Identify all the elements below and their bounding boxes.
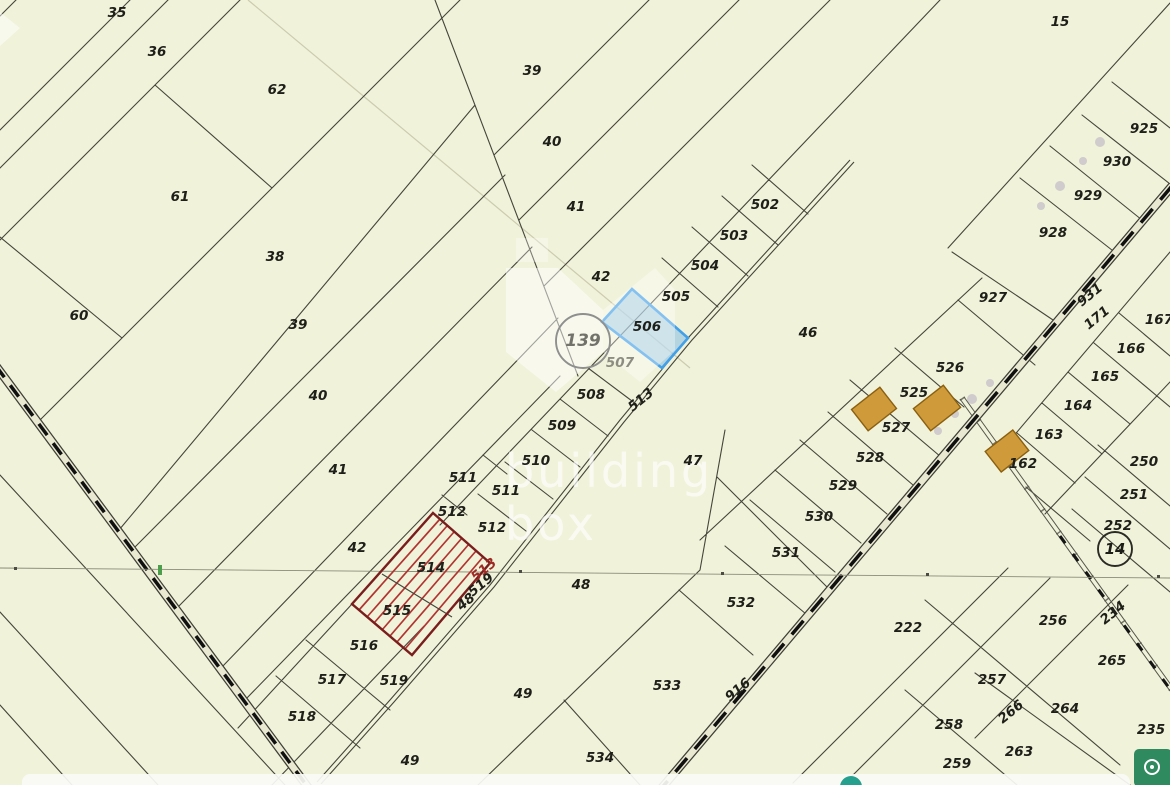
bottom-toolbar[interactable] — [22, 774, 1130, 785]
parcel-label-532[interactable]: 532 — [727, 595, 755, 611]
parcel-label-510[interactable]: 510 — [522, 453, 550, 469]
parcel-label-256[interactable]: 256 — [1039, 613, 1067, 629]
parcel-label-166[interactable]: 166 — [1117, 341, 1145, 357]
parcel-label-15[interactable]: 15 — [1051, 14, 1070, 30]
parcel-label-517[interactable]: 517 — [318, 672, 347, 688]
parcel-label-503[interactable]: 503 — [720, 228, 748, 244]
watermark-text-line2: box — [505, 497, 597, 551]
parcel-label-38[interactable]: 38 — [266, 249, 285, 265]
svg-text:139: 139 — [565, 331, 601, 351]
parcel-label-40[interactable]: 40 — [308, 388, 328, 404]
parcel-label-929[interactable]: 929 — [1074, 188, 1102, 204]
parcel-label-927[interactable]: 927 — [979, 290, 1008, 306]
parcel-label-511[interactable]: 511 — [492, 483, 520, 499]
parcel-label-526[interactable]: 526 — [936, 360, 964, 376]
parcel-label-49[interactable]: 49 — [400, 753, 420, 769]
parcel-label-528[interactable]: 528 — [856, 450, 884, 466]
parcel-label-36[interactable]: 36 — [148, 44, 167, 60]
parcel-label-222[interactable]: 222 — [894, 620, 922, 636]
cadastral-map[interactable]: building box 13914 353662613860394041423… — [0, 0, 1170, 785]
parcel-label-511[interactable]: 511 — [449, 470, 477, 486]
parcel-label-531[interactable]: 531 — [772, 545, 800, 561]
parcel-label-515[interactable]: 515 — [383, 603, 411, 619]
parcel-label-165[interactable]: 165 — [1091, 369, 1119, 385]
parcel-label-930[interactable]: 930 — [1103, 154, 1131, 170]
parcel-label-533[interactable]: 533 — [653, 678, 681, 694]
parcel-label-514[interactable]: 514 — [417, 560, 445, 576]
parcel-label-250[interactable]: 250 — [1130, 454, 1158, 470]
parcel-label-258[interactable]: 258 — [935, 717, 963, 733]
parcel-label-40[interactable]: 40 — [542, 134, 562, 150]
parcel-label-512[interactable]: 512 — [438, 504, 466, 520]
parcel-label-509[interactable]: 509 — [548, 418, 576, 434]
map-viewport[interactable]: building box 13914 353662613860394041423… — [0, 0, 1170, 785]
parcel-label-508[interactable]: 508 — [577, 387, 605, 403]
parcel-label-41[interactable]: 41 — [566, 199, 586, 215]
locate-button[interactable] — [1134, 749, 1170, 785]
parcel-label-507[interactable]: 507 — [606, 355, 635, 371]
parcel-label-164[interactable]: 164 — [1064, 398, 1092, 414]
parcel-label-257[interactable]: 257 — [978, 672, 1007, 688]
parcel-label-519[interactable]: 519 — [380, 673, 408, 689]
parcel-label-61[interactable]: 61 — [171, 189, 190, 205]
parcel-label-48[interactable]: 48 — [571, 577, 591, 593]
parcel-label-530[interactable]: 530 — [805, 509, 833, 525]
parcel-label-264[interactable]: 264 — [1051, 701, 1079, 717]
parcel-label-512[interactable]: 512 — [478, 520, 506, 536]
svg-text:14: 14 — [1105, 540, 1126, 558]
parcel-label-251[interactable]: 251 — [1120, 487, 1148, 503]
parcel-label-235[interactable]: 235 — [1137, 722, 1165, 738]
parcel-label-502[interactable]: 502 — [751, 197, 779, 213]
parcel-label-516[interactable]: 516 — [350, 638, 378, 654]
parcel-label-925[interactable]: 925 — [1130, 121, 1158, 137]
locate-target-dot — [1150, 765, 1154, 769]
parcel-label-529[interactable]: 529 — [829, 478, 857, 494]
parcel-label-167[interactable]: 167 — [1145, 312, 1170, 328]
parcel-label-42[interactable]: 42 — [591, 269, 611, 285]
parcel-label-60[interactable]: 60 — [70, 308, 89, 324]
parcel-label-39[interactable]: 39 — [523, 63, 542, 79]
parcel-label-525[interactable]: 525 — [900, 385, 928, 401]
parcel-label-506[interactable]: 506 — [633, 319, 661, 335]
parcel-label-42[interactable]: 42 — [347, 540, 367, 556]
parcel-label-162[interactable]: 162 — [1009, 456, 1037, 472]
parcel-label-265[interactable]: 265 — [1098, 653, 1126, 669]
parcel-label-62[interactable]: 62 — [268, 82, 287, 98]
survey-green-tick — [158, 565, 162, 575]
parcel-label-39[interactable]: 39 — [289, 317, 308, 333]
parcel-label-518[interactable]: 518 — [288, 709, 316, 725]
parcel-label-534[interactable]: 534 — [586, 750, 614, 766]
parcel-label-504[interactable]: 504 — [691, 258, 719, 274]
parcel-label-41[interactable]: 41 — [328, 462, 348, 478]
parcel-label-163[interactable]: 163 — [1035, 427, 1063, 443]
parcel-label-49[interactable]: 49 — [513, 686, 533, 702]
parcel-label-252[interactable]: 252 — [1104, 518, 1132, 534]
parcel-label-928[interactable]: 928 — [1039, 225, 1067, 241]
parcel-label-35[interactable]: 35 — [108, 5, 127, 21]
parcel-label-47[interactable]: 47 — [683, 453, 703, 469]
parcel-label-263[interactable]: 263 — [1005, 744, 1033, 760]
parcel-label-46[interactable]: 46 — [798, 325, 818, 341]
parcel-label-527[interactable]: 527 — [882, 420, 911, 436]
parcel-label-259[interactable]: 259 — [943, 756, 971, 772]
parcel-label-505[interactable]: 505 — [662, 289, 690, 305]
